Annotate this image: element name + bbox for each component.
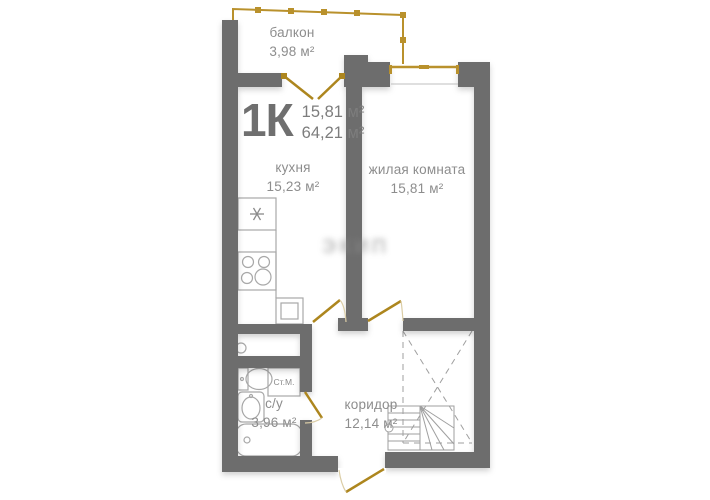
apartment-total-area: 64,21 м²	[302, 123, 365, 144]
fence-post	[354, 10, 360, 16]
wall-kitchen-top	[238, 73, 282, 87]
label-kitchen: кухня 15,23 м²	[267, 158, 320, 196]
wall-bottom-right	[385, 452, 490, 468]
wall-kitchen-bottom	[222, 324, 302, 334]
fence-post	[288, 8, 294, 14]
balcony-fence	[233, 7, 406, 64]
wall-partition-stub	[338, 318, 368, 331]
living-room-door	[368, 301, 401, 321]
fence-post	[255, 7, 261, 13]
wall-right	[474, 62, 490, 468]
wall-bathroom-right-upper	[300, 324, 312, 392]
wall-bathroom-top	[222, 356, 302, 368]
apartment-title: 1К 15,81 м² 64,21 м²	[241, 97, 364, 144]
wall-bottom-left	[222, 456, 338, 472]
burner	[259, 257, 270, 268]
wall-bathroom-right-lower	[300, 420, 312, 456]
room-name: кухня	[275, 160, 310, 175]
label-living-room: жилая комната 15,81 м²	[369, 160, 466, 198]
bathroom-door	[305, 392, 322, 418]
room-area: 12,14 м²	[345, 416, 398, 431]
label-balcony: балкон 3,98 м²	[269, 23, 314, 61]
window-living-room	[389, 65, 459, 84]
washing-machine-label: Ст.М.	[274, 377, 295, 387]
toilet-button	[241, 378, 244, 381]
burner	[255, 269, 271, 285]
kitchen-door	[313, 300, 340, 322]
room-area: 15,23 м²	[267, 179, 320, 194]
snowflake-icon	[250, 208, 264, 220]
burner	[242, 273, 253, 284]
bathtub-drain	[244, 437, 250, 443]
wall-left	[222, 20, 238, 472]
wall-living-top-left	[362, 62, 390, 87]
wall-living-bottom	[403, 318, 474, 331]
apartment-living-area: 15,81 м²	[302, 102, 365, 123]
room-area: 3,98 м²	[269, 44, 314, 59]
room-name: балкон	[269, 25, 314, 40]
room-name: с/у	[265, 396, 283, 411]
watermark: ЭКИП	[322, 236, 402, 259]
room-area: 15,81 м²	[391, 181, 444, 196]
fence-post	[400, 37, 406, 43]
floor-plan: Ст.М.	[0, 0, 710, 500]
apartment-type: 1К	[241, 97, 293, 143]
balcony-door-hinge	[339, 73, 345, 79]
kitchen-sink-icon	[276, 298, 303, 324]
label-bathroom: с/у 3,96 м²	[251, 394, 296, 432]
fence-post	[321, 9, 327, 15]
burner	[243, 257, 254, 268]
room-area: 3,96 м²	[251, 415, 296, 430]
fence-post	[400, 12, 406, 18]
balcony-door-hinge	[281, 73, 287, 79]
kitchen-sink-bowl	[281, 303, 298, 319]
kitchen-fixtures	[238, 198, 303, 324]
room-name: коридор	[345, 397, 398, 412]
room-name: жилая комната	[369, 162, 466, 177]
label-corridor: коридор 12,14 м²	[345, 395, 398, 433]
